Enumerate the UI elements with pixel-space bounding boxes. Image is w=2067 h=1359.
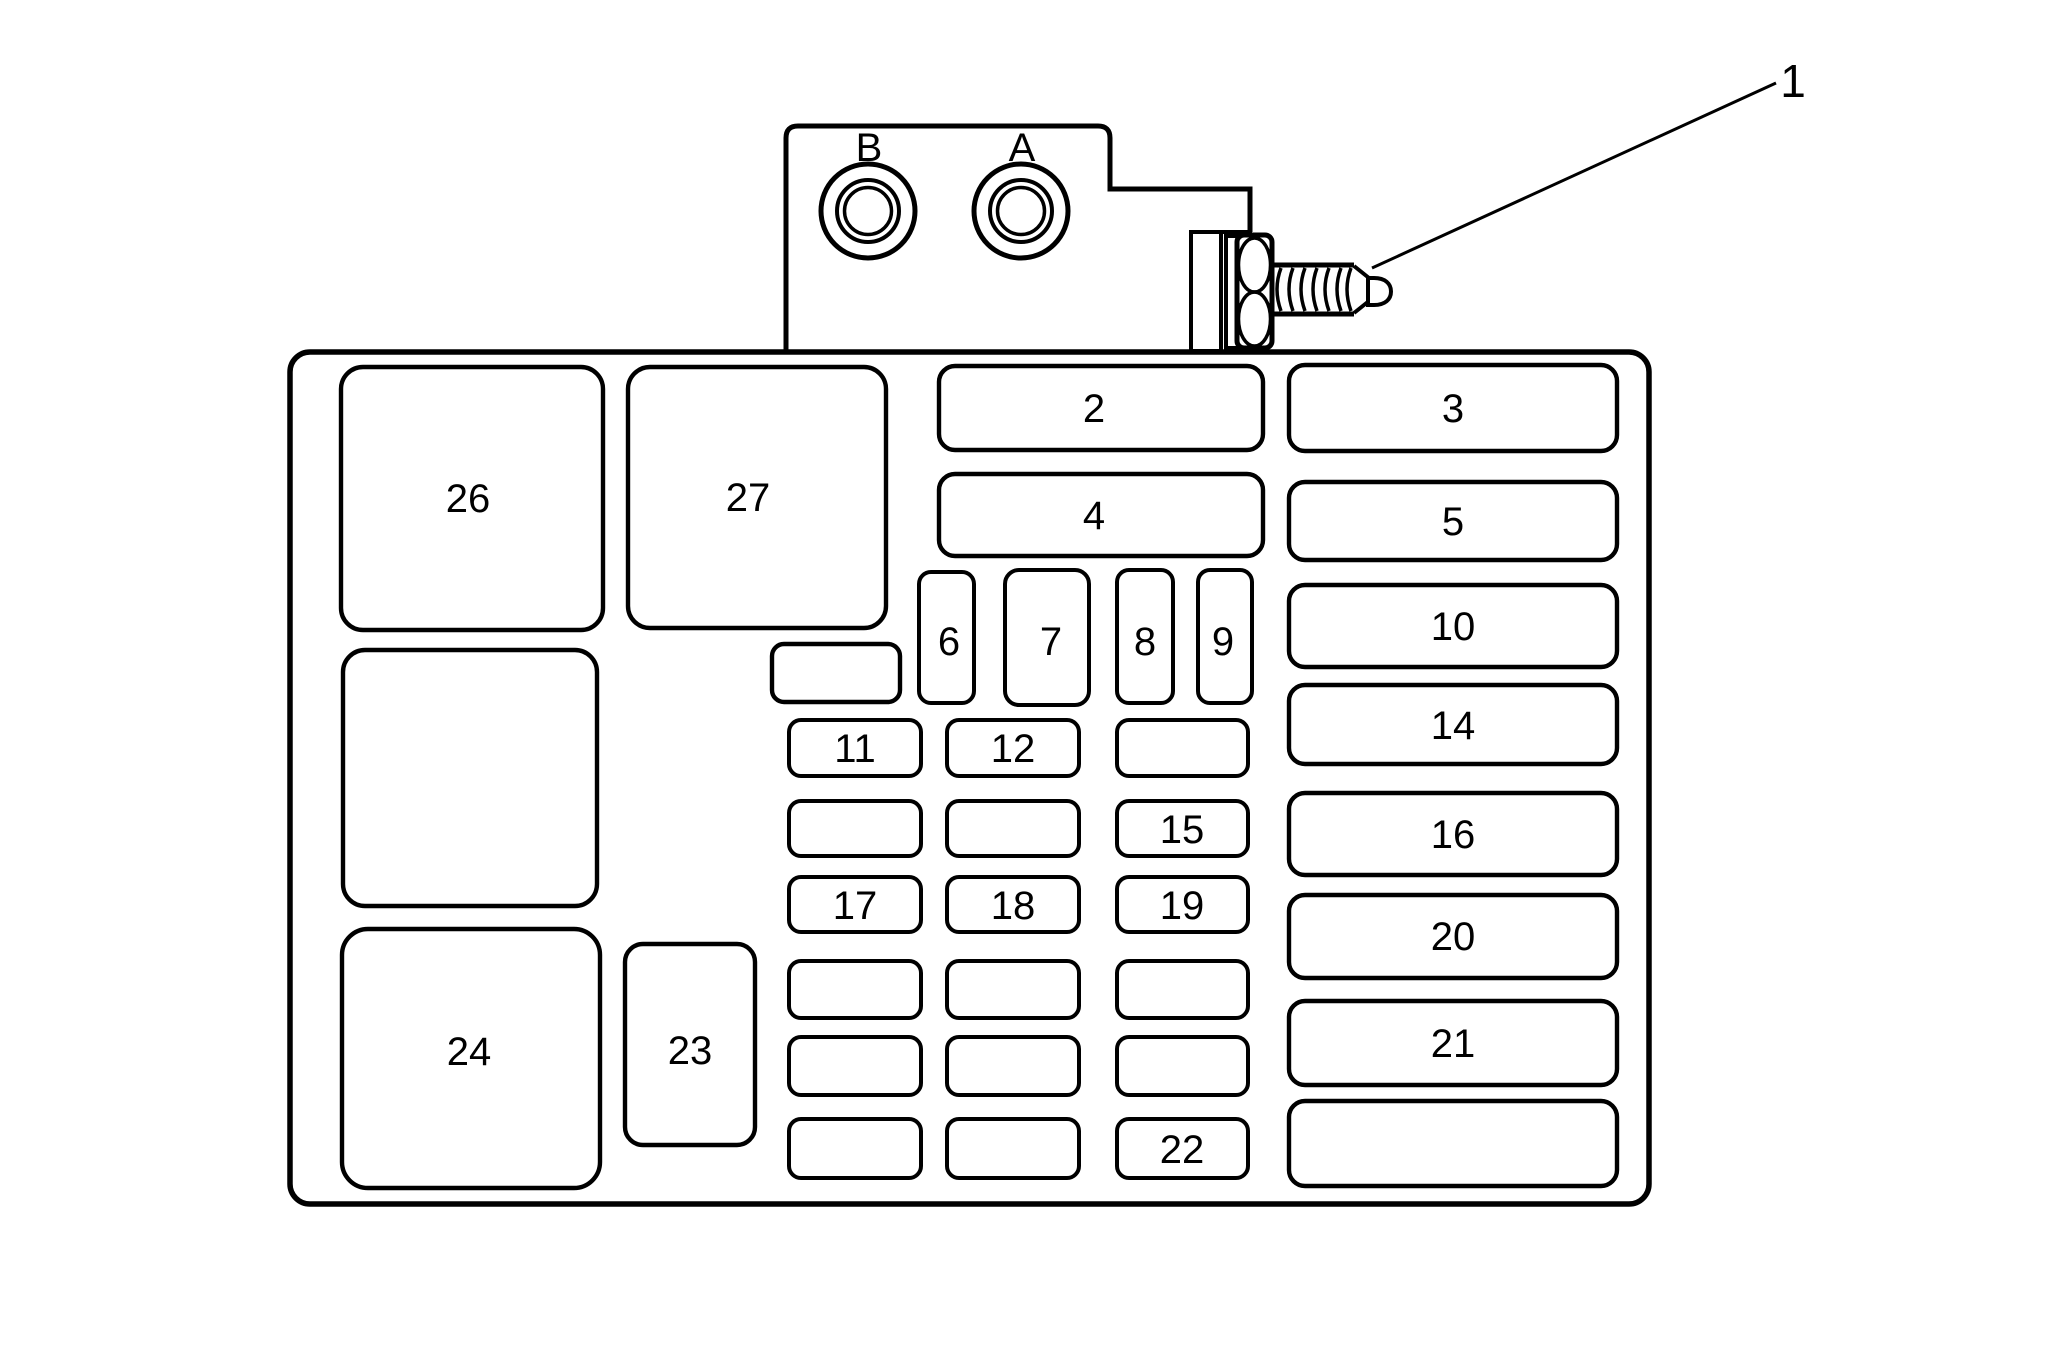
svg-text:9: 9 xyxy=(1212,620,1234,664)
svg-text:22: 22 xyxy=(1160,1128,1205,1172)
svg-text:7: 7 xyxy=(1040,620,1062,664)
svg-text:3: 3 xyxy=(1442,387,1464,431)
svg-text:21: 21 xyxy=(1431,1022,1476,1066)
svg-text:6: 6 xyxy=(938,620,960,664)
svg-text:10: 10 xyxy=(1431,605,1476,649)
svg-text:19: 19 xyxy=(1160,884,1205,928)
svg-text:17: 17 xyxy=(833,884,878,928)
svg-text:1: 1 xyxy=(1780,55,1806,107)
svg-text:16: 16 xyxy=(1431,813,1476,857)
svg-text:27: 27 xyxy=(726,476,771,520)
svg-text:5: 5 xyxy=(1442,500,1464,544)
svg-text:18: 18 xyxy=(991,884,1036,928)
svg-text:26: 26 xyxy=(446,477,491,521)
svg-text:2: 2 xyxy=(1083,387,1105,431)
svg-text:12: 12 xyxy=(991,727,1036,771)
svg-text:11: 11 xyxy=(834,727,876,771)
svg-text:20: 20 xyxy=(1431,915,1476,959)
svg-text:23: 23 xyxy=(668,1029,713,1073)
svg-text:8: 8 xyxy=(1134,620,1156,664)
svg-text:15: 15 xyxy=(1160,808,1205,852)
svg-text:14: 14 xyxy=(1431,704,1476,748)
svg-text:24: 24 xyxy=(447,1030,492,1074)
svg-text:4: 4 xyxy=(1083,494,1105,538)
